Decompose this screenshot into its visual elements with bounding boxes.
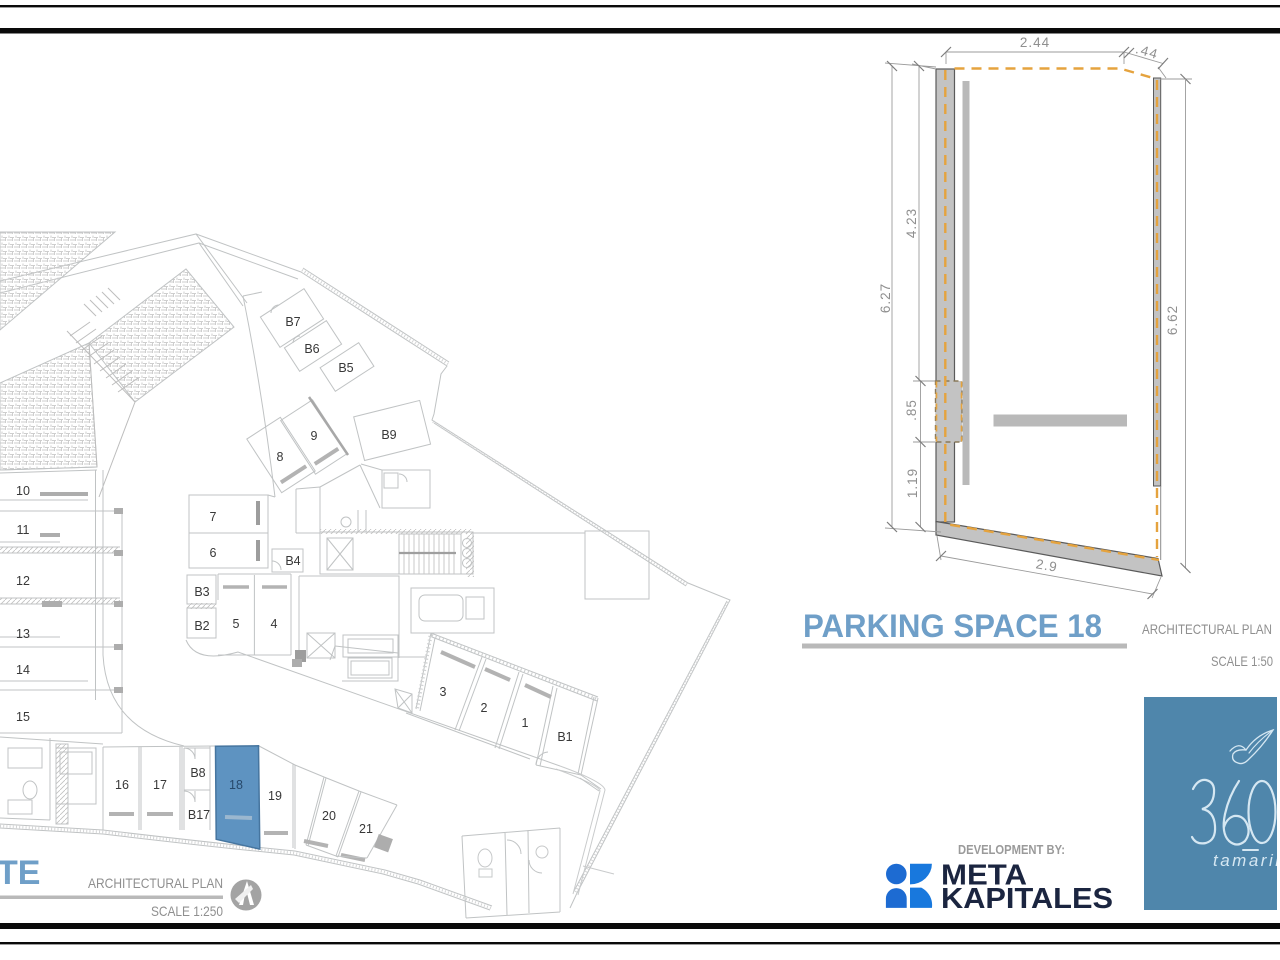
- svg-text:18: 18: [229, 778, 243, 792]
- svg-text:1: 1: [522, 716, 529, 730]
- svg-text:SCALE 1:250: SCALE 1:250: [151, 903, 223, 919]
- svg-text:B1: B1: [557, 730, 572, 744]
- svg-text:B9: B9: [381, 428, 396, 442]
- svg-text:7: 7: [210, 510, 217, 524]
- svg-text:SCALE 1:50: SCALE 1:50: [1211, 653, 1273, 669]
- svg-text:TE: TE: [0, 854, 40, 892]
- svg-text:B7: B7: [285, 315, 300, 329]
- svg-text:6.27: 6.27: [878, 283, 893, 313]
- svg-text:10: 10: [16, 484, 30, 498]
- svg-text:PARKING SPACE 18: PARKING SPACE 18: [803, 608, 1102, 644]
- svg-text:15: 15: [16, 710, 30, 724]
- svg-text:14: 14: [16, 663, 30, 677]
- svg-text:13: 13: [16, 627, 30, 641]
- svg-text:B6: B6: [304, 342, 319, 356]
- svg-text:DEVELOPMENT BY:: DEVELOPMENT BY:: [958, 842, 1065, 857]
- svg-text:9: 9: [311, 429, 318, 443]
- svg-text:1.19: 1.19: [905, 468, 920, 498]
- svg-text:19: 19: [268, 789, 282, 803]
- svg-text:B3: B3: [194, 585, 209, 599]
- svg-text:6.62: 6.62: [1165, 305, 1180, 335]
- svg-text:tamarindo: tamarindo: [1213, 851, 1280, 870]
- svg-text:21: 21: [359, 822, 373, 836]
- svg-text:B17: B17: [188, 808, 210, 822]
- svg-text:16: 16: [115, 778, 129, 792]
- svg-text:ARCHITECTURAL PLAN: ARCHITECTURAL PLAN: [88, 875, 223, 891]
- svg-text:4: 4: [271, 617, 278, 631]
- svg-text:2: 2: [481, 701, 488, 715]
- svg-text:KAPITALES: KAPITALES: [941, 883, 1113, 915]
- svg-text:11: 11: [17, 523, 30, 537]
- svg-text:8: 8: [277, 450, 284, 464]
- svg-text:B5: B5: [338, 361, 353, 375]
- svg-text:3: 3: [440, 685, 447, 699]
- svg-text:5: 5: [233, 617, 240, 631]
- svg-text:6: 6: [210, 546, 217, 560]
- svg-text:4.23: 4.23: [904, 208, 919, 238]
- svg-text:2.44: 2.44: [1020, 35, 1050, 50]
- svg-text:17: 17: [153, 778, 167, 792]
- svg-text:.85: .85: [904, 399, 919, 421]
- svg-text:2.9: 2.9: [1035, 556, 1059, 575]
- svg-text:B4: B4: [285, 554, 300, 568]
- svg-text:B8: B8: [190, 766, 205, 780]
- svg-text:20: 20: [322, 809, 336, 823]
- svg-text:.44: .44: [1134, 41, 1161, 62]
- svg-text:ARCHITECTURAL PLAN: ARCHITECTURAL PLAN: [1142, 621, 1272, 637]
- svg-text:12: 12: [16, 574, 30, 588]
- svg-text:B2: B2: [194, 619, 209, 633]
